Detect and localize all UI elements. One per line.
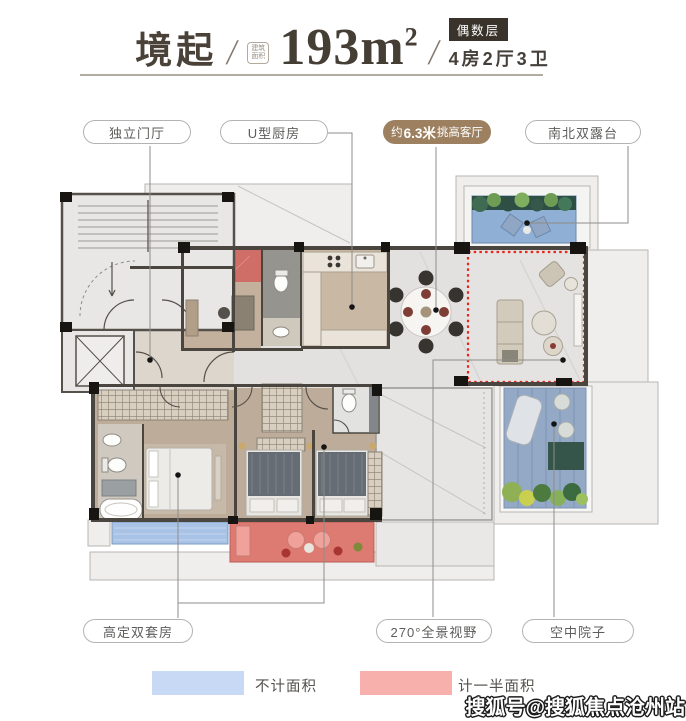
void-room (376, 388, 492, 520)
floorplan-poster: 境起 / 建筑 面积 193m2 / 偶数层 4房2厅3卫 (0, 0, 686, 721)
callout-sky-courtyard: 空中院子 (522, 619, 634, 643)
legend-swatch-half-area (360, 671, 452, 695)
living-room-floor (465, 248, 587, 386)
living-highlight: 6.3米 (403, 122, 437, 142)
master-suite (98, 390, 228, 520)
half-area-balcony (230, 522, 374, 562)
legend-label-no-area: 不计面积 (255, 675, 317, 696)
watermark: 搜狐号@搜狐焦点沧州站 (465, 691, 685, 720)
legend-swatch-no-area (152, 671, 244, 695)
living-suffix: 挑高客厅 (437, 124, 483, 140)
callout-double-suites: 高定双套房 (83, 619, 193, 643)
callout-double-height-living: 约6.3米挑高客厅 (383, 120, 491, 144)
living-prefix: 约 (391, 124, 403, 140)
callout-u-kitchen: U型厨房 (220, 120, 328, 144)
sky-courtyard (502, 388, 588, 508)
callout-panoramic-view: 270°全景视野 (376, 619, 492, 643)
bay-window-strip (112, 522, 228, 544)
north-terrace (472, 193, 576, 244)
callout-double-terrace: 南北双露台 (525, 120, 641, 144)
stairwell (62, 194, 234, 330)
callout-entry-hall: 独立门厅 (83, 120, 191, 144)
floor-plan (0, 0, 686, 721)
